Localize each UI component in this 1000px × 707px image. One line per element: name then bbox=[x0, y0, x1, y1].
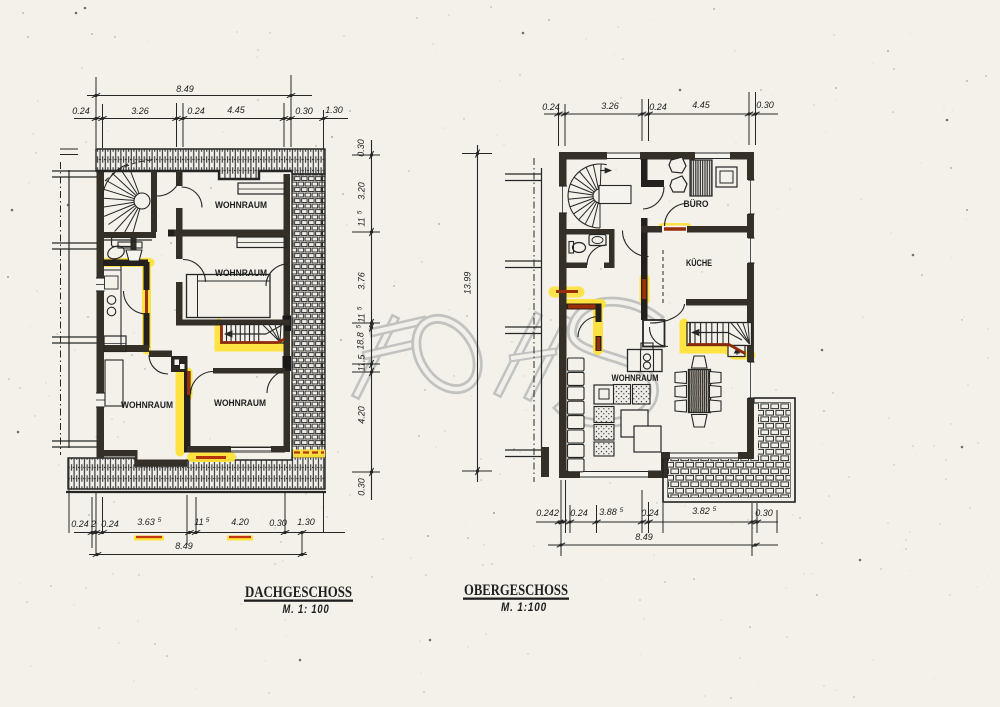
svg-text:18.8: 18.8 bbox=[356, 332, 366, 350]
svg-text:5: 5 bbox=[620, 507, 624, 514]
svg-text:3.63: 3.63 bbox=[137, 517, 155, 527]
svg-text:0.24: 0.24 bbox=[542, 102, 560, 112]
svg-text:5: 5 bbox=[356, 324, 363, 328]
svg-text:11: 11 bbox=[357, 313, 367, 322]
svg-text:M. 1:100: M. 1:100 bbox=[501, 602, 547, 614]
svg-text:3.26: 3.26 bbox=[131, 106, 149, 116]
svg-text:11: 11 bbox=[357, 217, 367, 226]
svg-text:0.24: 0.24 bbox=[649, 102, 667, 112]
svg-text:3.88: 3.88 bbox=[599, 507, 617, 517]
svg-text:4.45: 4.45 bbox=[692, 100, 711, 110]
svg-text:KÜCHE: KÜCHE bbox=[686, 258, 712, 269]
svg-text:WOHNRAUM: WOHNRAUM bbox=[215, 200, 267, 211]
svg-text:M. 1: 100: M. 1: 100 bbox=[283, 604, 330, 616]
svg-text:8.49: 8.49 bbox=[176, 84, 194, 94]
svg-text:11.5: 11.5 bbox=[357, 354, 367, 372]
svg-text:0.30: 0.30 bbox=[755, 508, 773, 518]
svg-text:0.24: 0.24 bbox=[641, 508, 659, 518]
svg-text:WOHNRAUM: WOHNRAUM bbox=[121, 400, 173, 411]
svg-text:0.24: 0.24 bbox=[570, 508, 588, 518]
svg-text:3.20: 3.20 bbox=[357, 182, 367, 200]
svg-text:DACHGESCHOSS: DACHGESCHOSS bbox=[245, 584, 352, 601]
svg-text:5: 5 bbox=[357, 210, 364, 214]
svg-text:1.30: 1.30 bbox=[297, 517, 315, 527]
svg-text:0.24: 0.24 bbox=[536, 508, 554, 518]
svg-text:0.30: 0.30 bbox=[269, 518, 287, 528]
svg-text:8.49: 8.49 bbox=[635, 532, 653, 542]
svg-text:1.30: 1.30 bbox=[325, 105, 343, 115]
svg-text:3.76: 3.76 bbox=[357, 272, 367, 290]
svg-text:0.30: 0.30 bbox=[295, 106, 313, 116]
svg-text:8.49: 8.49 bbox=[175, 541, 193, 551]
svg-text:0.24: 0.24 bbox=[72, 106, 90, 116]
svg-text:2: 2 bbox=[553, 508, 559, 518]
svg-text:5: 5 bbox=[158, 517, 162, 524]
svg-text:0.24: 0.24 bbox=[71, 519, 89, 529]
svg-text:0.30: 0.30 bbox=[756, 100, 774, 110]
svg-text:WOHNRAUM: WOHNRAUM bbox=[215, 268, 267, 279]
svg-text:0.30: 0.30 bbox=[356, 139, 366, 157]
svg-text:OBERGESCHOSS: OBERGESCHOSS bbox=[464, 582, 568, 599]
svg-text:0.30: 0.30 bbox=[357, 478, 367, 496]
svg-text:0.24: 0.24 bbox=[187, 106, 205, 116]
svg-text:4.20: 4.20 bbox=[231, 517, 249, 527]
svg-text:13.99: 13.99 bbox=[463, 272, 473, 295]
svg-text:WOHNRAUM: WOHNRAUM bbox=[214, 398, 266, 409]
svg-text:WOHNRAUM: WOHNRAUM bbox=[612, 373, 659, 384]
svg-text:5: 5 bbox=[206, 517, 210, 524]
svg-text:3.82: 3.82 bbox=[692, 506, 710, 516]
svg-text:0.24: 0.24 bbox=[101, 519, 119, 529]
svg-text:5: 5 bbox=[713, 506, 717, 513]
svg-text:4.20: 4.20 bbox=[357, 406, 367, 424]
svg-text:2: 2 bbox=[90, 519, 96, 529]
svg-text:BÜRO: BÜRO bbox=[684, 199, 709, 210]
svg-text:5: 5 bbox=[357, 306, 364, 310]
svg-text:4.45: 4.45 bbox=[227, 105, 246, 115]
svg-text:3.26: 3.26 bbox=[601, 101, 619, 111]
